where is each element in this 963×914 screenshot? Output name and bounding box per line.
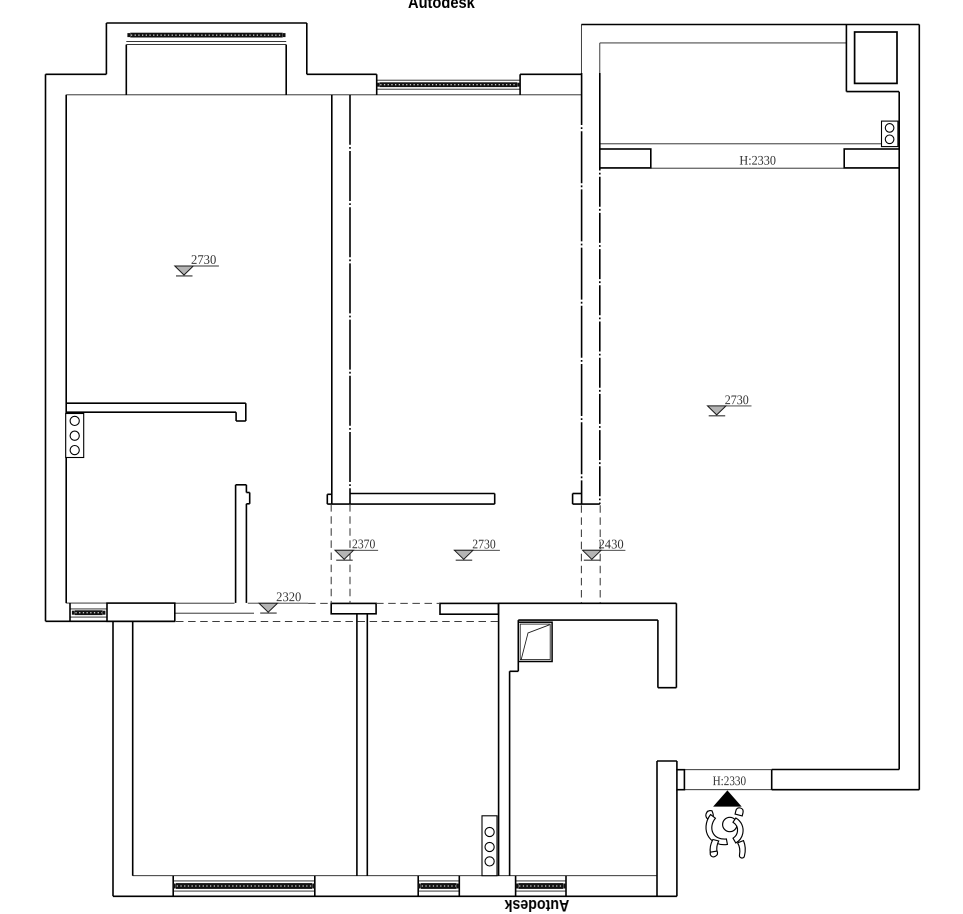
svg-text:2730: 2730 bbox=[725, 392, 749, 407]
svg-text:2730: 2730 bbox=[472, 536, 496, 551]
svg-text:2370: 2370 bbox=[352, 536, 376, 551]
svg-text:2430: 2430 bbox=[599, 536, 625, 551]
svg-text:2730: 2730 bbox=[191, 252, 217, 267]
svg-text:H:2330: H:2330 bbox=[739, 153, 776, 168]
svg-text:H:2330: H:2330 bbox=[713, 773, 747, 788]
svg-text:2320: 2320 bbox=[276, 589, 301, 604]
